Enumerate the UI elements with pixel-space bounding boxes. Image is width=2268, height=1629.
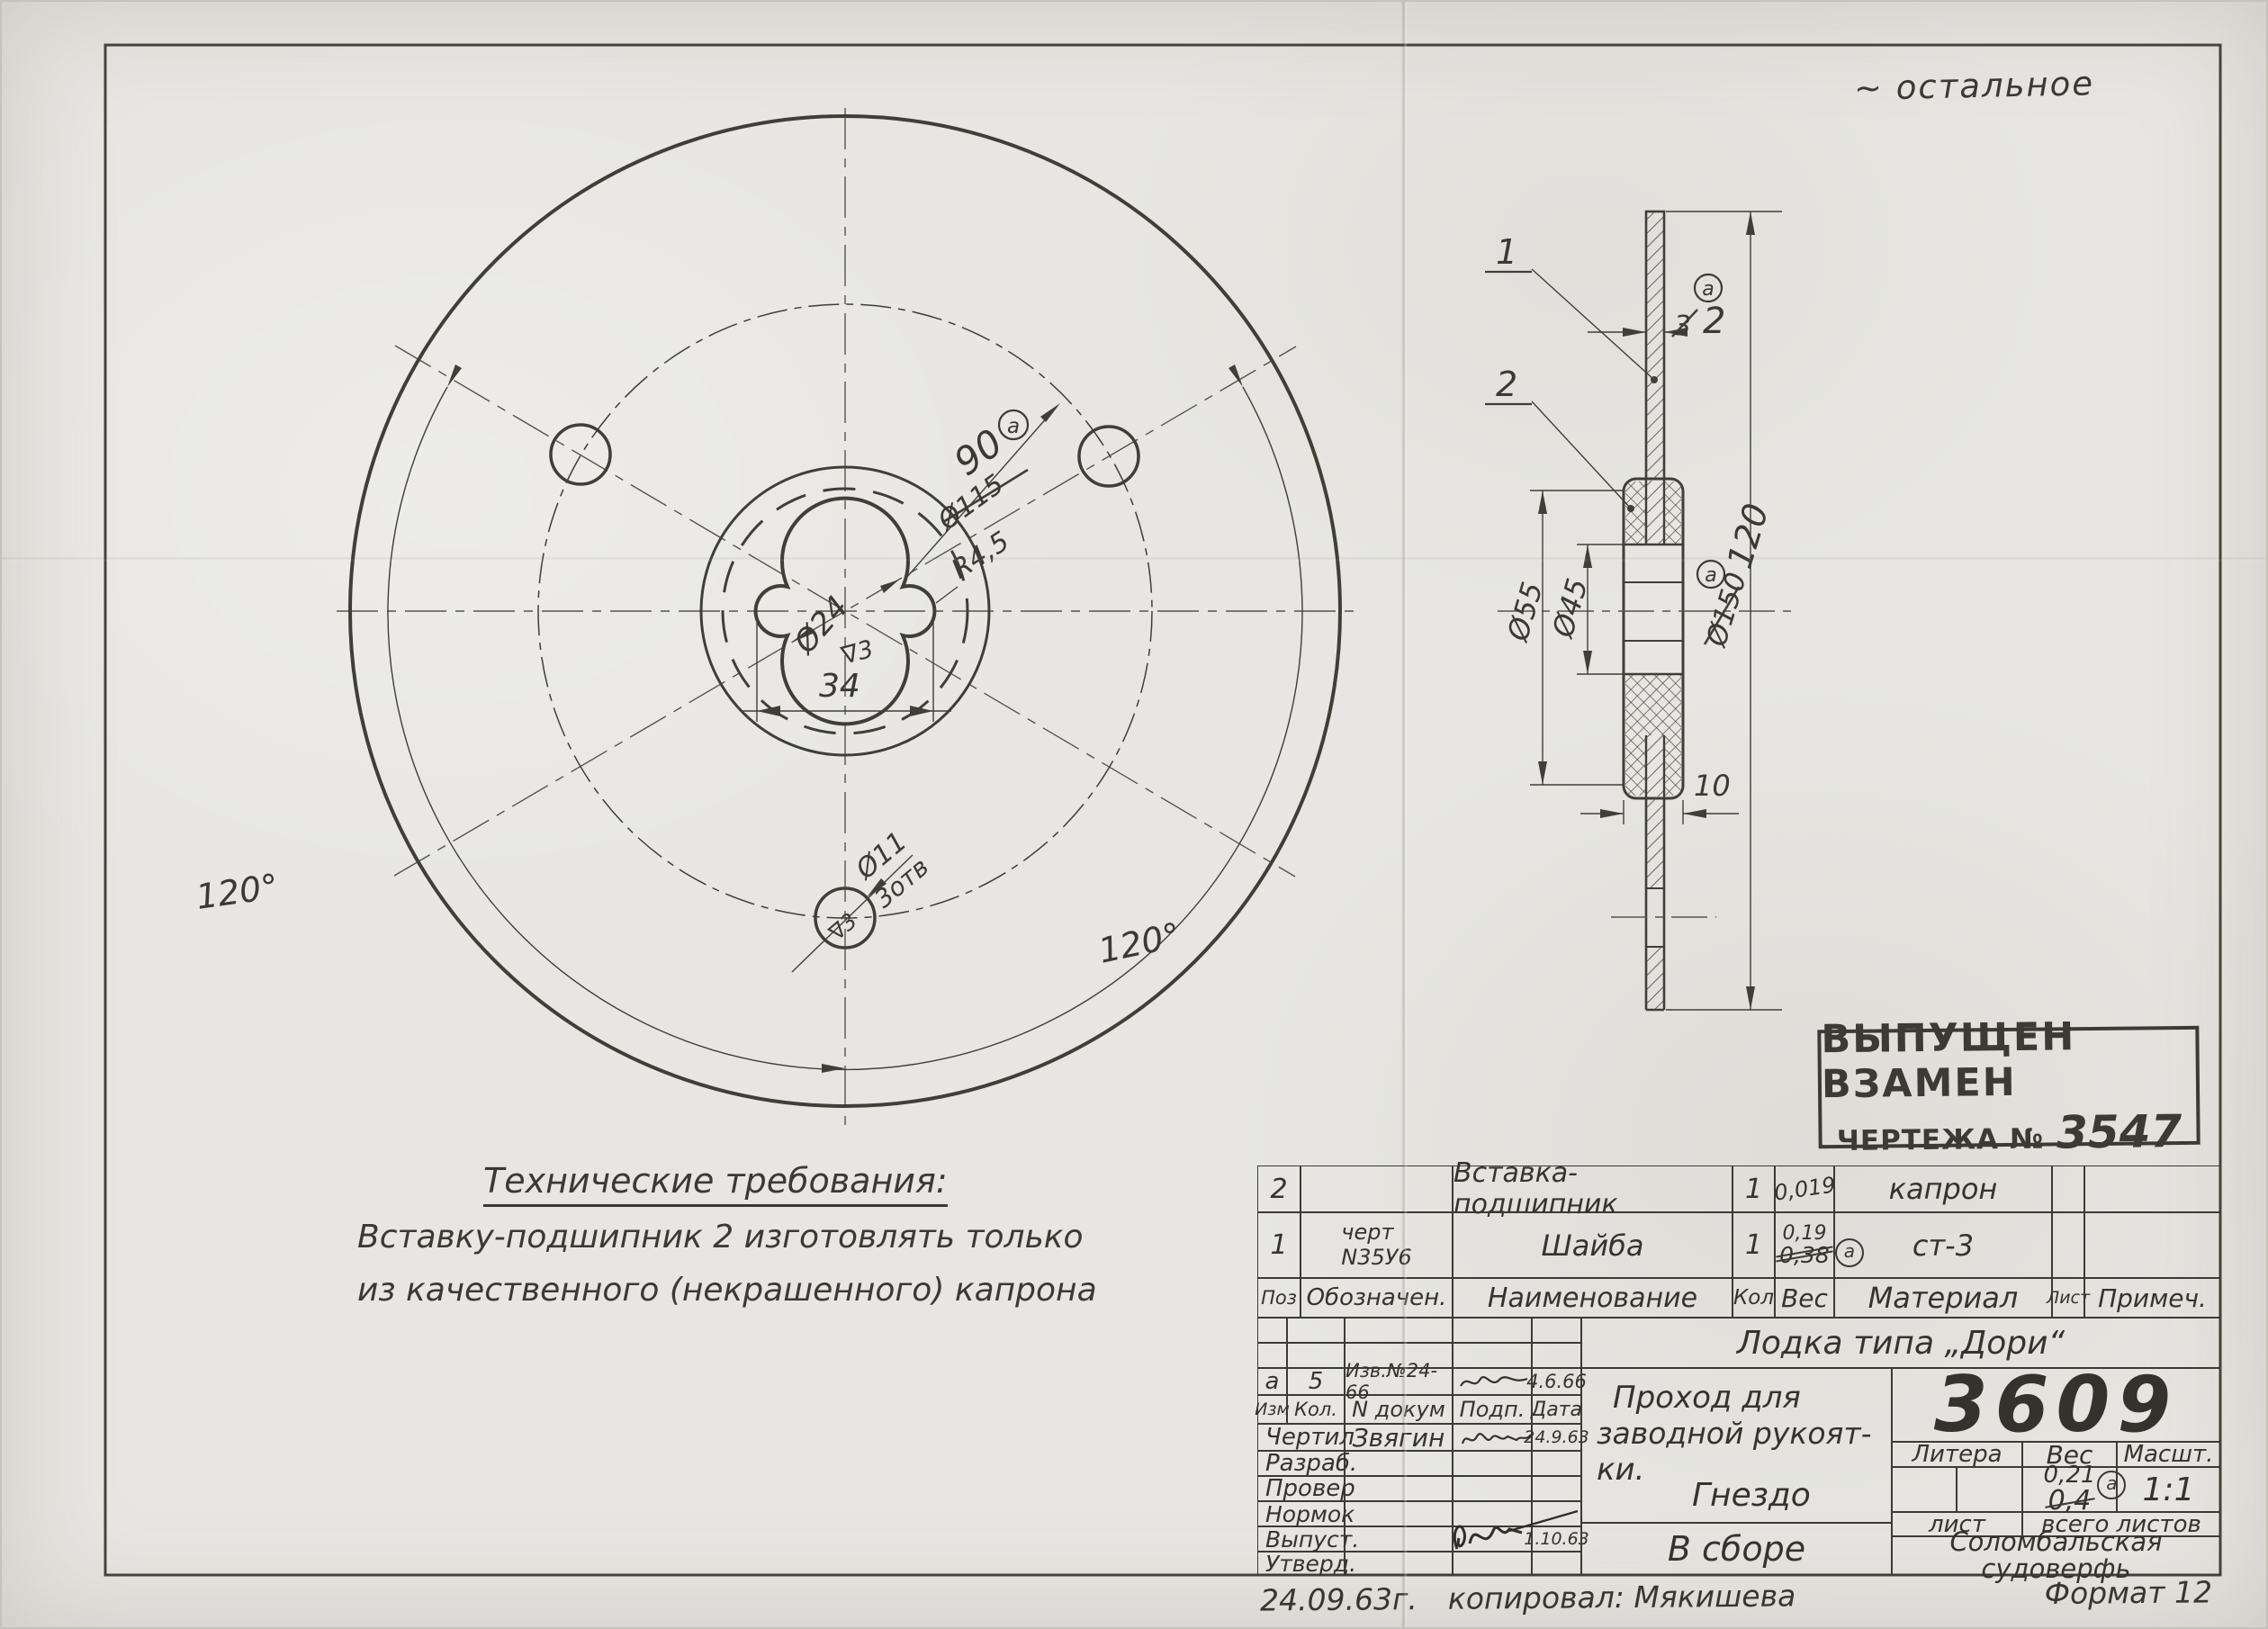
parts-designation bbox=[1300, 1165, 1453, 1212]
scale-header: Масшт. bbox=[2117, 1442, 2220, 1467]
plan-view-labels: 120° 120° 90 а Ø115 R4,5 Ø24 ∇3 34 Ø11 3… bbox=[193, 410, 1183, 971]
thickness-old-label: 3 bbox=[1674, 310, 1691, 342]
parts-header-designation: Обозначен. bbox=[1300, 1278, 1453, 1318]
reissue-stamp: ВЫПУЩЕН ВЗАМЕН ЧЕРТЕЖА № 3547 bbox=[1817, 1026, 2200, 1148]
sig-header-podp: Подп. bbox=[1453, 1395, 1532, 1424]
parts-name: Вставка-подшипник bbox=[1453, 1165, 1732, 1212]
sig-date: 24.9.63 bbox=[1532, 1424, 1581, 1451]
sig-name: Звягин bbox=[1345, 1424, 1453, 1451]
sig-signature-cell bbox=[1453, 1476, 1532, 1501]
sig-name bbox=[1345, 1552, 1453, 1575]
grid-cell bbox=[1453, 1318, 1532, 1343]
litera-header: Литера bbox=[1892, 1442, 2022, 1467]
grid-cell bbox=[1257, 1343, 1287, 1368]
parts-header-sheet: Лист bbox=[2052, 1278, 2084, 1318]
title-line1: Проход для bbox=[1613, 1380, 1801, 1416]
grid-cell bbox=[1287, 1318, 1345, 1343]
parts-note bbox=[2084, 1165, 2220, 1212]
dia-new-label: 120 bbox=[1720, 499, 1777, 572]
scale-value: 1:1 bbox=[2117, 1467, 2220, 1512]
grid-cell bbox=[1345, 1318, 1453, 1343]
parts-pos: 1 bbox=[1257, 1212, 1300, 1278]
sig-date bbox=[1532, 1451, 1581, 1476]
parts-qty: 1 bbox=[1732, 1212, 1775, 1278]
parts-header-qty: Кол bbox=[1732, 1278, 1775, 1318]
copy-by: копировал: Мякишева bbox=[1448, 1578, 1796, 1615]
technical-requirements: Технические требования: Вставку-подшипни… bbox=[357, 1161, 1167, 1312]
rev-doc: Изв.№24-66 bbox=[1345, 1368, 1453, 1395]
rev-izm: а bbox=[1257, 1368, 1287, 1395]
techreq-heading: Технические требования: bbox=[483, 1161, 948, 1207]
techreq-line2: из качественного (некрашенного) капрона bbox=[357, 1269, 1167, 1313]
sig-role: Разраб. bbox=[1257, 1451, 1345, 1476]
parts-pos: 2 bbox=[1257, 1165, 1300, 1212]
title-line2: заводной рукоят- bbox=[1597, 1416, 1872, 1451]
parts-weight: 0,019 bbox=[1772, 1172, 1837, 1205]
copy-date: 24.09.63г. bbox=[1260, 1581, 1417, 1618]
litera-cell bbox=[1957, 1467, 2022, 1512]
factory-cell: Соломбальская судоверфь bbox=[1892, 1536, 2220, 1575]
sig-role: Выпуст. bbox=[1257, 1526, 1345, 1552]
surface-finish-note: ~ остальное bbox=[1854, 64, 2095, 108]
factory-line1: Соломбальская bbox=[1949, 1529, 2162, 1556]
parts-header-material: Материал bbox=[1834, 1278, 2052, 1318]
sig-name bbox=[1345, 1451, 1453, 1476]
parts-material: ст-3 bbox=[1834, 1212, 2052, 1278]
finish-hole-label: ∇3 bbox=[823, 908, 862, 946]
revision-mark: а bbox=[1705, 564, 1716, 587]
grid-cell bbox=[1532, 1318, 1581, 1343]
parts-note bbox=[2084, 1212, 2220, 1278]
techreq-line1: Вставку-подшипник 2 изготовлять только bbox=[357, 1216, 1167, 1260]
finish-center-label: ∇3 bbox=[838, 635, 877, 670]
grid-cell bbox=[1287, 1343, 1345, 1368]
fold-crease-horizontal bbox=[2, 556, 2266, 562]
sig-signature-cell bbox=[1453, 1451, 1532, 1476]
parts-material: капрон bbox=[1834, 1165, 2052, 1212]
title-line4: Гнездо bbox=[1692, 1477, 1811, 1514]
sig-name bbox=[1345, 1476, 1453, 1501]
format-label: Формат 12 bbox=[2044, 1574, 2212, 1611]
item2-label: 2 bbox=[1496, 364, 1517, 404]
bolt-circle-new-label: 90 bbox=[946, 420, 1011, 484]
rev-kol: 5 bbox=[1287, 1368, 1345, 1395]
signature-rev bbox=[1457, 1370, 1533, 1395]
parts-name: Шайба bbox=[1453, 1212, 1732, 1278]
stamp-line1: ВЫПУЩЕН ВЗАМЕН bbox=[1821, 1013, 2196, 1107]
drawing-title-cell: Проход для заводной рукоят- ки. Гнездо bbox=[1581, 1368, 1892, 1523]
rev-date: 4.6.66 bbox=[1532, 1368, 1581, 1395]
leader-radius bbox=[936, 587, 958, 603]
revision-mark: а bbox=[1007, 415, 1020, 438]
drawing-number: 3609 bbox=[1934, 1360, 2178, 1450]
grid-cell bbox=[1257, 1318, 1287, 1343]
parts-qty: 1 bbox=[1732, 1165, 1775, 1212]
parts-weight-old: 0,38 bbox=[1779, 1244, 1830, 1267]
weight-value-cell: 0,21 0,4 а bbox=[2022, 1467, 2117, 1512]
item1-label: 1 bbox=[1496, 232, 1517, 272]
signature-vypust bbox=[1443, 1506, 1587, 1556]
revision-mark: а bbox=[1702, 278, 1714, 301]
angle-label-left: 120° bbox=[193, 867, 281, 917]
drawing-number-cell: 3609 bbox=[1892, 1368, 2220, 1442]
parts-header-weight: Вес bbox=[1775, 1278, 1834, 1318]
grid-cell bbox=[1532, 1343, 1581, 1368]
insert-width-label: 10 bbox=[1694, 769, 1731, 803]
signature-chertil bbox=[1459, 1426, 1534, 1451]
sig-header-izm: Изм bbox=[1257, 1395, 1287, 1424]
sig-name bbox=[1345, 1501, 1453, 1526]
width-label: 34 bbox=[819, 668, 860, 705]
grid-cell bbox=[1453, 1343, 1532, 1368]
sig-role: Утверд. bbox=[1257, 1552, 1345, 1575]
assembly-label: В сборе bbox=[1581, 1523, 1892, 1575]
parts-sheet bbox=[2052, 1165, 2084, 1212]
sig-role: Чертил bbox=[1257, 1424, 1345, 1451]
sig-header-doc: N докум bbox=[1345, 1395, 1453, 1424]
sig-role: Нормок bbox=[1257, 1501, 1345, 1526]
thickness-new-label: 2 bbox=[1703, 301, 1725, 342]
parts-header-pos: Поз bbox=[1257, 1278, 1300, 1318]
title-line3: ки. bbox=[1597, 1452, 1644, 1488]
parts-sheet bbox=[2052, 1212, 2084, 1278]
stamp-line2-prefix: ЧЕРТЕЖА № bbox=[1837, 1123, 2045, 1157]
stamp-drawing-number: 3547 bbox=[2056, 1105, 2182, 1158]
sig-role: Провер bbox=[1257, 1476, 1345, 1501]
angle-label-right: 120° bbox=[1095, 915, 1184, 971]
sig-header-kol: Кол. bbox=[1287, 1395, 1345, 1424]
fold-crease-vertical bbox=[1401, 2, 1408, 1627]
parts-header-note: Примеч. bbox=[2084, 1278, 2220, 1318]
sig-header-date: Дата bbox=[1532, 1395, 1581, 1424]
sig-date bbox=[1532, 1476, 1581, 1501]
drawing-sheet: 120° 120° 90 а Ø115 R4,5 Ø24 ∇3 34 Ø11 3… bbox=[0, 0, 2268, 1629]
sig-name bbox=[1345, 1526, 1453, 1552]
litera-cell bbox=[1892, 1467, 1957, 1512]
parts-header-name: Наименование bbox=[1453, 1278, 1732, 1318]
weight-new: 0,21 bbox=[2044, 1463, 2096, 1488]
parts-weight-new: 0,19 bbox=[1783, 1224, 1827, 1244]
